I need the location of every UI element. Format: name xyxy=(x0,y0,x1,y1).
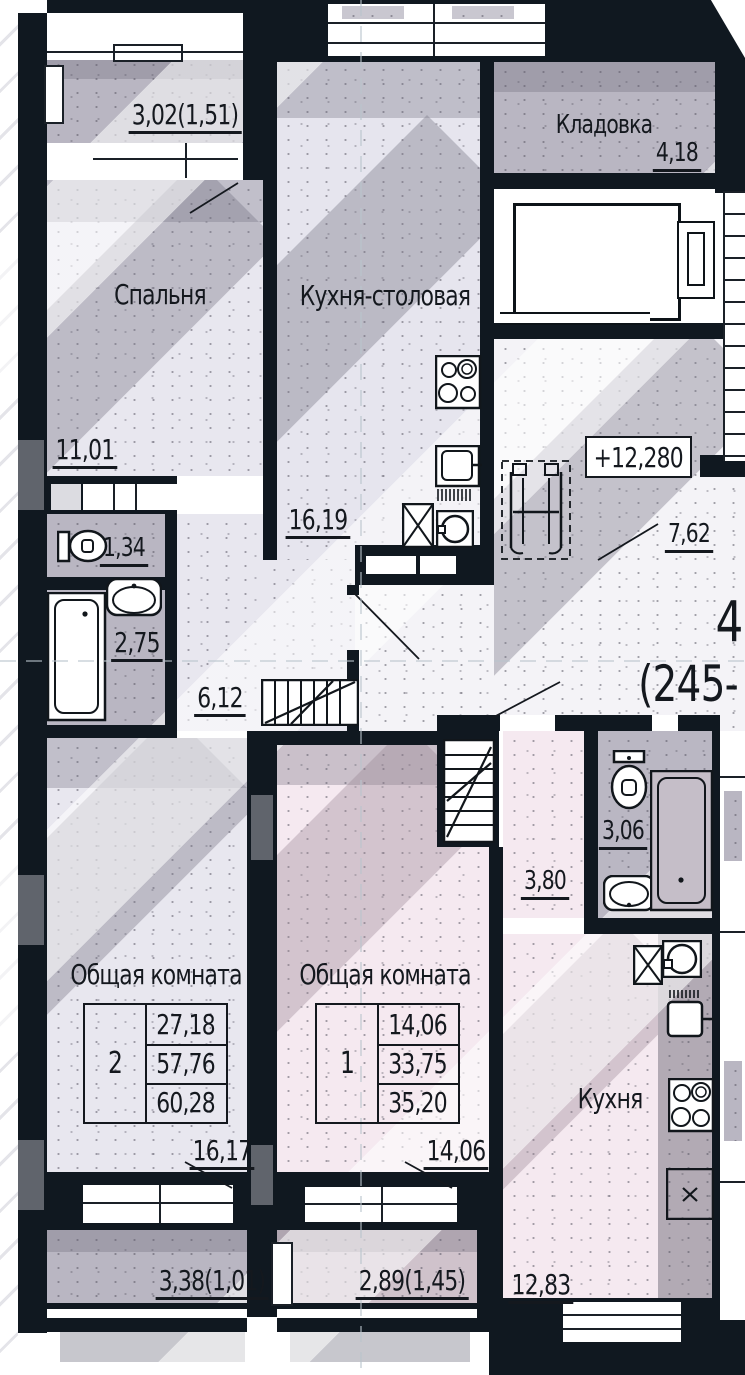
room-label-bedroom: Спальня xyxy=(101,280,219,309)
floor-plan: 3,02(1,51) Спальня Кухня-столовая Кладов… xyxy=(0,0,745,1375)
area-label-kitchen-apt1: 12,83 xyxy=(499,1270,582,1304)
room-label-kitchen-apt1: Кухня xyxy=(568,1084,651,1113)
area-label-wc: 1,34 xyxy=(93,535,155,567)
apartment-table-1-number: 1 xyxy=(317,1005,379,1122)
apartment-table-1-living: 14,06 xyxy=(377,1005,458,1046)
apartment-table-2: 2 27,18 57,76 60,28 xyxy=(83,1003,228,1124)
area-label-hall-apt1: 3,80 xyxy=(514,868,576,900)
apartment-table-2-living: 27,18 xyxy=(145,1005,226,1046)
room-label-storage: Кладовка xyxy=(542,112,666,139)
apartment-table-2-number: 2 xyxy=(85,1005,147,1122)
area-label-balcony-top: 3,02(1,51) xyxy=(113,100,258,134)
area-label-bathroom-apt1: 3,06 xyxy=(592,818,654,850)
apartment-table-2-area: 57,76 xyxy=(145,1044,226,1085)
apartment-table-2-total: 60,28 xyxy=(145,1083,226,1122)
elevation-mark: +12,280 xyxy=(585,436,692,478)
apartment-number: 4 xyxy=(712,594,745,653)
area-label-lobby: 7,62 xyxy=(658,521,720,553)
apartment-table-1: 1 14,06 33,75 35,20 xyxy=(315,1003,460,1124)
area-label-kitchen-dining: 16,19 xyxy=(276,505,359,539)
room-label-living-apt1: Общая комната xyxy=(275,960,495,989)
area-label-storage: 4,18 xyxy=(646,140,708,172)
area-label-living-apt1: 14,06 xyxy=(414,1136,497,1170)
apartment-range: (245- xyxy=(624,658,745,711)
area-label-balcony-bl: 3,38(1,01) xyxy=(140,1266,285,1300)
area-label-balcony-bm: 2,89(1,45) xyxy=(340,1266,485,1300)
area-label-living-apt2: 16,17 xyxy=(180,1136,263,1170)
room-label-living-apt2: Общая комната xyxy=(46,960,266,989)
area-label-bedroom: 11,01 xyxy=(43,435,126,469)
area-label-corridor: 6,12 xyxy=(187,683,253,717)
area-label-bathroom: 2,75 xyxy=(104,628,170,662)
room-label-kitchen-dining: Кухня-столовая xyxy=(276,281,495,310)
apartment-table-1-area: 33,75 xyxy=(377,1044,458,1085)
apartment-table-1-total: 35,20 xyxy=(377,1083,458,1122)
